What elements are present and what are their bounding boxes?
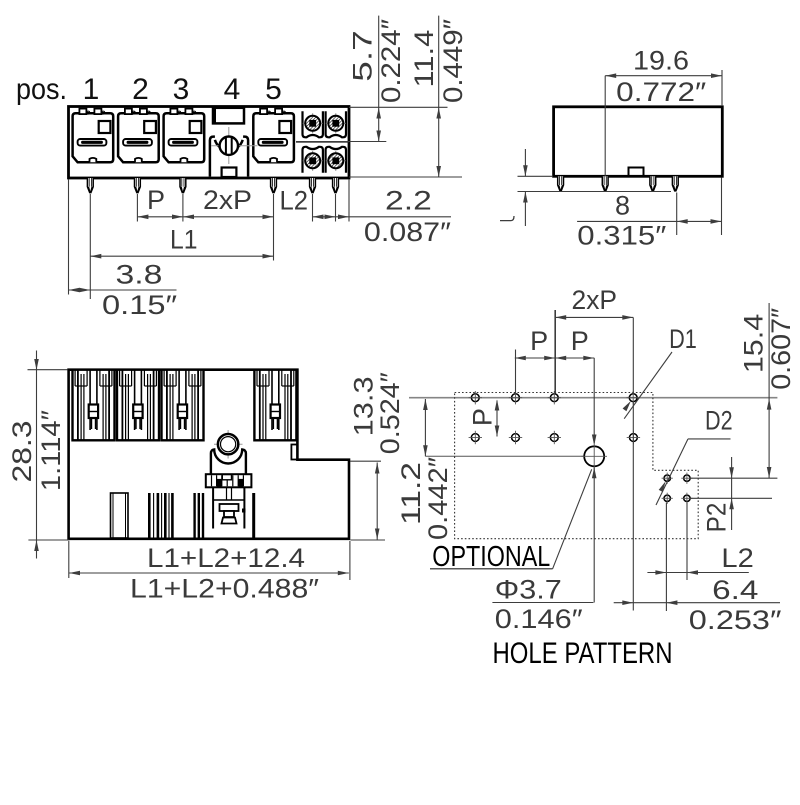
svg-text:L1: L1 xyxy=(170,225,198,255)
svg-text:L1+L2+0.488″: L1+L2+0.488″ xyxy=(130,574,319,604)
svg-text:0.224″: 0.224″ xyxy=(376,19,406,103)
svg-text:L1+L2+12.4: L1+L2+12.4 xyxy=(147,543,305,573)
svg-text:2: 2 xyxy=(132,73,149,106)
svg-text:3: 3 xyxy=(173,73,190,106)
svg-text:0.449″: 0.449″ xyxy=(438,19,468,103)
svg-text:P: P xyxy=(468,408,498,426)
svg-text:1.114″: 1.114″ xyxy=(36,410,66,491)
svg-text:5: 5 xyxy=(265,73,282,106)
svg-text:HOLE PATTERN: HOLE PATTERN xyxy=(493,637,673,670)
svg-text:pos.: pos. xyxy=(16,73,67,106)
svg-text:0.315″: 0.315″ xyxy=(577,221,667,251)
svg-text:0.146″: 0.146″ xyxy=(495,604,583,634)
svg-text:D2: D2 xyxy=(705,405,733,435)
svg-text:P2: P2 xyxy=(702,503,732,533)
svg-text:2xP: 2xP xyxy=(203,185,252,215)
svg-text:11.2: 11.2 xyxy=(396,462,426,525)
svg-text:2.2: 2.2 xyxy=(385,186,432,216)
svg-text:4: 4 xyxy=(224,73,241,106)
svg-text:8: 8 xyxy=(615,191,630,221)
svg-text:19.6: 19.6 xyxy=(633,45,689,75)
svg-text:5.7: 5.7 xyxy=(348,30,378,82)
svg-text:0.253″: 0.253″ xyxy=(689,605,782,635)
svg-text:15.4: 15.4 xyxy=(739,314,769,373)
svg-text:0.442″: 0.442″ xyxy=(423,457,453,540)
svg-text:L2: L2 xyxy=(721,543,753,573)
svg-text:Φ3.7: Φ3.7 xyxy=(495,575,562,605)
svg-text:P: P xyxy=(530,326,548,356)
svg-text:0.524″: 0.524″ xyxy=(375,372,405,454)
svg-text:0.15″: 0.15″ xyxy=(102,290,178,320)
svg-text:1: 1 xyxy=(83,73,100,106)
svg-text:0.087″: 0.087″ xyxy=(364,217,451,247)
svg-text:3.8: 3.8 xyxy=(116,260,163,290)
svg-text:0.772″: 0.772″ xyxy=(616,77,707,107)
svg-text:2xP: 2xP xyxy=(572,285,618,315)
svg-text:0.607″: 0.607″ xyxy=(766,307,796,389)
svg-text:P: P xyxy=(571,326,589,356)
svg-text:28.3: 28.3 xyxy=(7,421,37,483)
svg-text:L2: L2 xyxy=(280,186,309,216)
svg-text:13.3: 13.3 xyxy=(348,376,378,436)
svg-text:11.4: 11.4 xyxy=(409,30,439,88)
svg-text:6.4: 6.4 xyxy=(712,575,758,605)
svg-text:P: P xyxy=(147,185,165,215)
svg-text:D1: D1 xyxy=(669,324,697,354)
